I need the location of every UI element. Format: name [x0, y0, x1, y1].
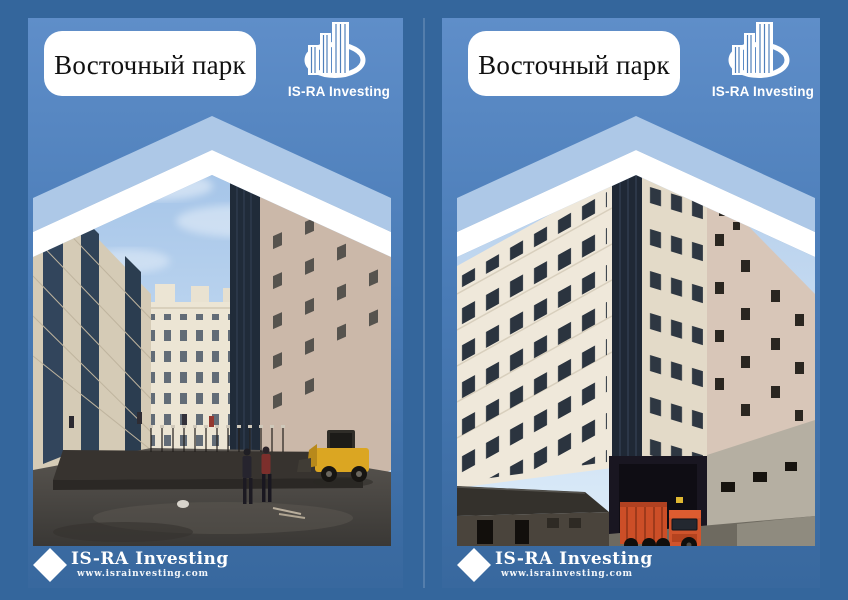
- left-photo: [33, 116, 391, 546]
- photo-artwork: [33, 116, 391, 546]
- page-left: Восточный парк: [0, 0, 424, 600]
- diamond-icon: [33, 548, 67, 582]
- brand-logo: IS-RA Investing: [710, 20, 816, 99]
- brand-logo: IS-RA Investing: [286, 20, 392, 99]
- project-title-box: Восточный парк: [44, 31, 256, 96]
- page-footer: IS-RA Investing www.israinvesting.com: [442, 548, 820, 592]
- footer-brand: IS-RA Investing: [495, 549, 653, 569]
- page-panel: Восточный парк: [28, 18, 403, 588]
- footer-url: www.israinvesting.com: [77, 569, 229, 579]
- buildings-logo-icon: [286, 20, 392, 78]
- project-title-box: Восточный парк: [468, 31, 680, 96]
- project-title: Восточный парк: [54, 46, 246, 81]
- brand-name: IS-RA Investing: [710, 84, 816, 99]
- brochure-spread: Восточный парк: [0, 0, 848, 600]
- page-panel: Восточный парк: [442, 18, 820, 588]
- page-seam: [423, 18, 425, 588]
- footer-brand: IS-RA Investing: [71, 549, 229, 569]
- left-facade: [457, 180, 612, 488]
- brand-name: IS-RA Investing: [286, 84, 392, 99]
- buildings-logo-icon: [710, 20, 816, 78]
- right-photo: [457, 116, 815, 546]
- photo-artwork: [457, 116, 815, 546]
- page-footer: IS-RA Investing www.israinvesting.com: [28, 548, 403, 592]
- footer-url: www.israinvesting.com: [501, 569, 653, 579]
- page-right: Восточный парк: [424, 0, 848, 600]
- project-title: Восточный парк: [478, 46, 670, 81]
- diamond-icon: [457, 548, 491, 582]
